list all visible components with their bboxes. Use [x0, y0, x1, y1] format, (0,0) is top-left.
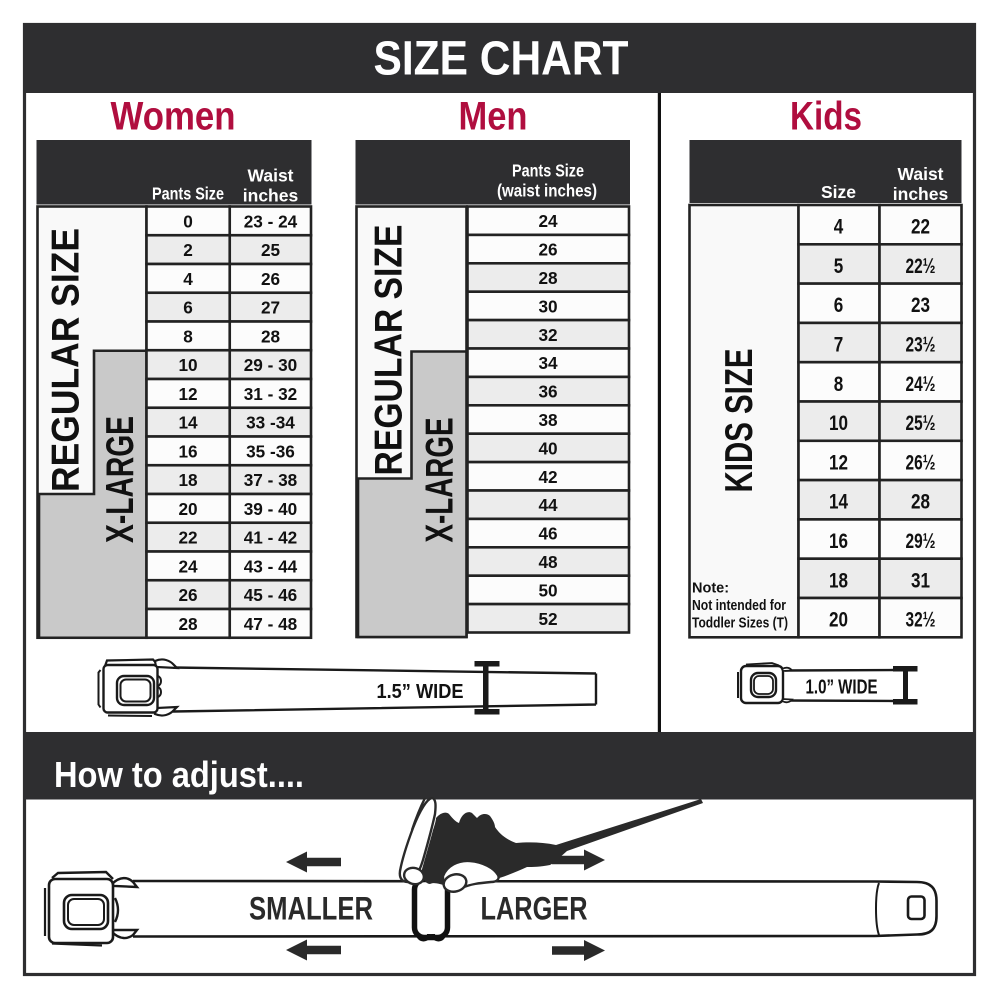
svg-text:35 -36: 35 -36	[246, 441, 295, 461]
svg-text:Men: Men	[459, 95, 528, 139]
svg-text:Note:: Note:	[692, 581, 729, 597]
svg-text:47 - 48: 47 - 48	[244, 614, 298, 634]
svg-text:52: 52	[538, 609, 557, 629]
svg-text:12: 12	[178, 384, 197, 404]
svg-text:24: 24	[538, 211, 558, 231]
svg-text:23: 23	[911, 294, 930, 317]
svg-text:18: 18	[178, 470, 198, 490]
svg-text:32½: 32½	[906, 609, 936, 632]
svg-text:33 -34: 33 -34	[246, 413, 295, 433]
svg-text:SIZE CHART: SIZE CHART	[374, 32, 629, 86]
svg-text:Waist: Waist	[897, 164, 943, 184]
svg-text:22: 22	[911, 216, 930, 239]
svg-text:12: 12	[829, 451, 848, 474]
svg-text:1.5” WIDE: 1.5” WIDE	[377, 681, 464, 703]
svg-text:22½: 22½	[906, 255, 936, 278]
svg-text:43 - 44: 43 - 44	[244, 556, 298, 576]
svg-text:23 - 24: 23 - 24	[244, 211, 298, 231]
svg-text:0: 0	[183, 211, 193, 231]
svg-text:X-LARGE: X-LARGE	[419, 418, 462, 543]
svg-text:29 - 30: 29 - 30	[244, 355, 298, 375]
svg-text:How to adjust....: How to adjust....	[54, 754, 304, 795]
svg-text:20: 20	[178, 499, 197, 519]
svg-text:(waist inches): (waist inches)	[497, 181, 597, 201]
svg-text:10: 10	[178, 355, 197, 375]
svg-text:37 - 38: 37 - 38	[244, 470, 298, 490]
svg-text:45 - 46: 45 - 46	[244, 585, 298, 605]
svg-text:26: 26	[261, 269, 280, 289]
svg-text:8: 8	[834, 373, 844, 396]
svg-text:2: 2	[183, 240, 193, 260]
svg-text:Toddler Sizes (T): Toddler Sizes (T)	[692, 616, 788, 632]
svg-text:28: 28	[538, 268, 558, 288]
svg-text:16: 16	[178, 441, 197, 461]
svg-text:KIDS SIZE: KIDS SIZE	[718, 349, 761, 493]
svg-text:X-LARGE: X-LARGE	[99, 416, 142, 543]
svg-text:6: 6	[834, 294, 844, 317]
svg-text:25: 25	[261, 240, 281, 260]
svg-text:4: 4	[834, 216, 844, 239]
svg-text:inches: inches	[243, 186, 299, 206]
svg-text:8: 8	[183, 326, 193, 346]
svg-text:30: 30	[538, 296, 557, 316]
svg-text:inches: inches	[893, 184, 949, 204]
svg-text:42: 42	[538, 467, 557, 487]
svg-text:28: 28	[178, 614, 198, 634]
svg-text:Waist: Waist	[247, 166, 293, 186]
svg-text:40: 40	[538, 438, 557, 458]
svg-text:41 - 42: 41 - 42	[244, 528, 298, 548]
svg-text:28: 28	[261, 326, 281, 346]
svg-text:Pants Size: Pants Size	[152, 184, 224, 204]
svg-text:14: 14	[829, 491, 848, 514]
svg-text:REGULAR SIZE: REGULAR SIZE	[45, 228, 88, 492]
svg-text:38: 38	[538, 410, 558, 430]
svg-text:26: 26	[538, 240, 557, 260]
svg-text:Pants Size: Pants Size	[512, 161, 584, 181]
svg-text:26½: 26½	[906, 451, 936, 474]
svg-text:16: 16	[829, 530, 848, 553]
svg-text:7: 7	[834, 334, 844, 357]
svg-text:32: 32	[538, 325, 557, 345]
svg-text:LARGER: LARGER	[481, 891, 588, 927]
svg-text:Kids: Kids	[790, 95, 862, 139]
svg-text:REGULAR SIZE: REGULAR SIZE	[368, 225, 411, 476]
svg-text:28: 28	[911, 491, 930, 514]
svg-text:48: 48	[538, 552, 558, 572]
svg-text:27: 27	[261, 298, 280, 318]
svg-text:SMALLER: SMALLER	[249, 891, 373, 927]
svg-text:25½: 25½	[906, 412, 936, 435]
svg-text:24: 24	[178, 556, 198, 576]
svg-text:46: 46	[538, 524, 557, 544]
svg-text:14: 14	[178, 413, 198, 433]
svg-text:10: 10	[829, 412, 848, 435]
svg-text:50: 50	[538, 580, 557, 600]
svg-text:26: 26	[178, 585, 197, 605]
svg-text:23½: 23½	[906, 334, 936, 357]
svg-text:6: 6	[183, 298, 193, 318]
svg-text:24½: 24½	[906, 373, 936, 396]
svg-text:Size: Size	[821, 182, 856, 202]
svg-text:31 - 32: 31 - 32	[244, 384, 298, 404]
svg-text:39 - 40: 39 - 40	[244, 499, 298, 519]
svg-text:Not intended for: Not intended for	[692, 598, 786, 614]
svg-text:36: 36	[538, 382, 557, 402]
svg-text:20: 20	[829, 609, 848, 632]
svg-text:34: 34	[538, 353, 558, 373]
svg-text:4: 4	[183, 269, 193, 289]
svg-text:44: 44	[538, 495, 558, 515]
svg-text:18: 18	[829, 569, 848, 592]
svg-text:1.0” WIDE: 1.0” WIDE	[806, 677, 878, 699]
svg-text:29½: 29½	[906, 530, 936, 553]
svg-text:31: 31	[911, 569, 930, 592]
svg-text:Women: Women	[111, 95, 236, 139]
svg-text:22: 22	[178, 528, 197, 548]
svg-text:5: 5	[834, 255, 844, 278]
